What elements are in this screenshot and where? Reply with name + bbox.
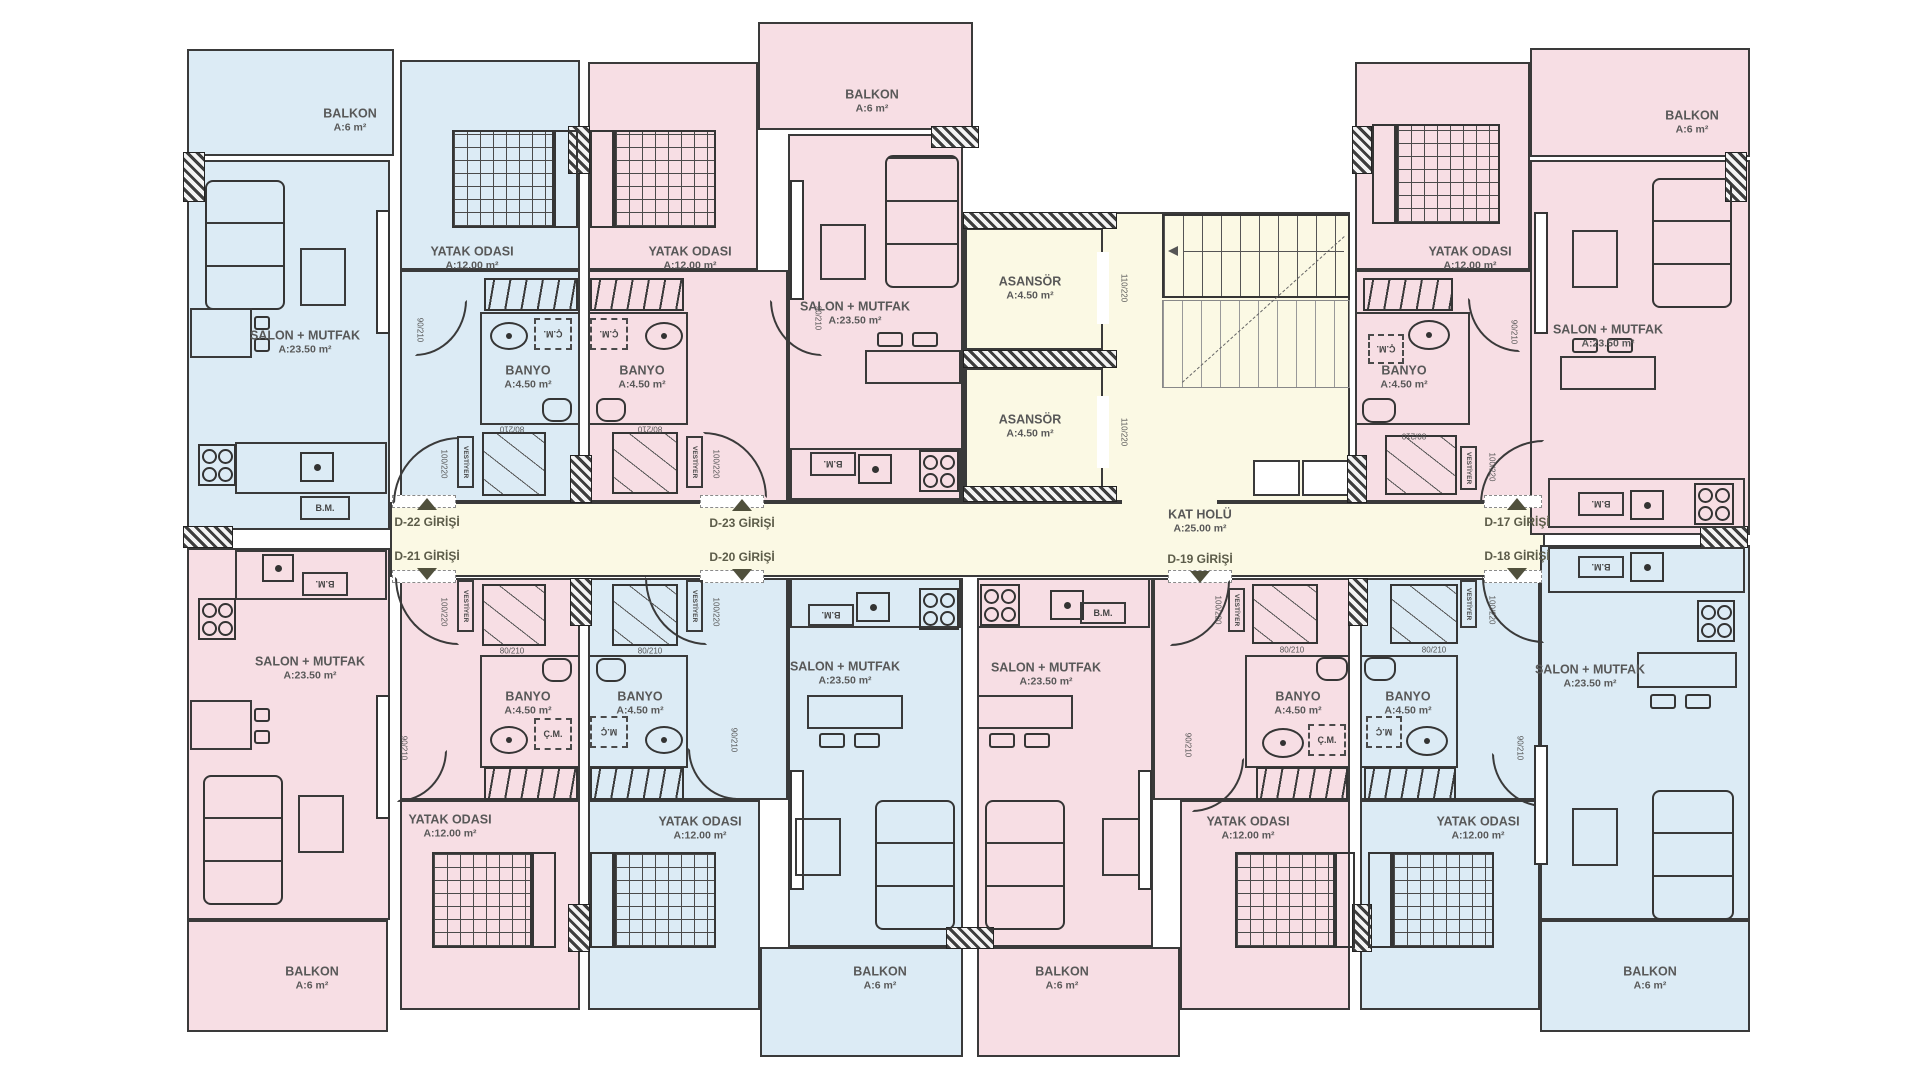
bed-headboard bbox=[590, 130, 614, 228]
washing-machine-label: Ç.M. bbox=[536, 320, 570, 348]
coffee-table bbox=[1572, 808, 1618, 866]
stool bbox=[854, 733, 880, 748]
tv-unit bbox=[376, 695, 390, 819]
entrance-arrow-d23 bbox=[732, 499, 752, 511]
dishwasher-label: B.M. bbox=[810, 606, 852, 624]
door-dimension: 110/220 bbox=[1120, 274, 1129, 302]
room-area: A:6 m² bbox=[1665, 124, 1718, 136]
room-name: SALON + MUTFAK bbox=[250, 328, 360, 342]
room-area: A:4.50 m² bbox=[504, 705, 551, 717]
room-name: BANYO bbox=[504, 689, 551, 703]
bed-headboard bbox=[1335, 852, 1355, 948]
room-area: A:23.50 m² bbox=[250, 344, 360, 356]
label-balcony-d18: BALKONA:6 m² bbox=[1623, 964, 1676, 991]
room-name: SALON + MUTFAK bbox=[1535, 662, 1645, 676]
stove bbox=[198, 444, 236, 486]
entrance-arrow-d18 bbox=[1507, 568, 1527, 580]
label-elevator-1: ASANSÖRA:4.50 m² bbox=[999, 274, 1062, 301]
dishwasher: B.M. bbox=[1578, 492, 1624, 516]
label-bedroom-d20: YATAK ODASIA:12.00 m² bbox=[658, 814, 741, 841]
door-dimension: 80/210 bbox=[1280, 646, 1304, 655]
stool bbox=[1650, 694, 1676, 709]
label-balcony-d21: BALKONA:6 m² bbox=[285, 964, 338, 991]
stove bbox=[919, 588, 959, 630]
dining-table bbox=[190, 308, 252, 358]
room-area: A:4.50 m² bbox=[1384, 705, 1431, 717]
wall-hatch bbox=[1352, 126, 1372, 174]
bed bbox=[1392, 852, 1494, 948]
label-salon-d22: SALON + MUTFAKA:23.50 m² bbox=[250, 328, 360, 355]
vestiyer-label: VESTİYER bbox=[459, 582, 472, 630]
dishwasher-label: B.M. bbox=[1580, 494, 1622, 514]
sofa bbox=[1652, 790, 1734, 920]
bed bbox=[452, 130, 554, 228]
entrance-arrow-d17 bbox=[1507, 498, 1527, 510]
vestiyer-label: VESTİYER bbox=[1230, 590, 1243, 630]
tv-unit bbox=[1534, 212, 1548, 334]
wall-hatch-elevator-bottom bbox=[963, 486, 1117, 502]
door-dimension: 100/220 bbox=[1214, 596, 1223, 625]
door-dimension: 80/210 bbox=[638, 647, 662, 656]
door-dimension: 80/210 bbox=[1402, 432, 1426, 441]
dishwasher: B.M. bbox=[808, 604, 854, 626]
bed bbox=[432, 852, 532, 948]
door-dimension: 100/220 bbox=[712, 450, 721, 479]
sofa bbox=[985, 800, 1065, 930]
corridor-kat-holu bbox=[390, 502, 1545, 577]
door-dimension: 110/220 bbox=[1120, 418, 1129, 446]
entrance-arrow-d19 bbox=[1190, 571, 1210, 583]
dishwasher: B.M. bbox=[302, 572, 348, 596]
label-bedroom-d23: YATAK ODASIA:12.00 m² bbox=[648, 244, 731, 271]
coffee-table bbox=[1572, 230, 1618, 288]
door-dimension: 90/210 bbox=[814, 306, 823, 330]
wall-hatch bbox=[570, 578, 592, 626]
stool bbox=[1024, 733, 1050, 748]
label-entrance-d21: D-21 GİRİŞİ bbox=[394, 549, 459, 563]
label-bathroom-d23: BANYOA:4.50 m² bbox=[618, 363, 665, 390]
room-name: SALON + MUTFAK bbox=[1553, 322, 1663, 336]
room-name: BALKON bbox=[1035, 964, 1088, 978]
bath-sink bbox=[645, 726, 683, 754]
toilet bbox=[596, 398, 626, 422]
wall-hatch bbox=[931, 126, 979, 148]
dishwasher: B.M. bbox=[810, 452, 856, 476]
label-bathroom-d18: BANYOA:4.50 m² bbox=[1384, 689, 1431, 716]
dining-table bbox=[1560, 356, 1656, 390]
room-area: A:12.00 m² bbox=[1436, 830, 1519, 842]
room-balcony-d17 bbox=[1530, 48, 1750, 157]
room-name: YATAK ODASI bbox=[1436, 814, 1519, 828]
wall-hatch bbox=[1348, 578, 1368, 626]
wall-hatch bbox=[183, 526, 233, 548]
room-name: BANYO bbox=[1380, 363, 1427, 377]
vestiyer-cabinet: VESTİYER bbox=[686, 436, 703, 488]
label-bathroom-d22: BANYOA:4.50 m² bbox=[504, 363, 551, 390]
stool bbox=[1685, 694, 1711, 709]
shower bbox=[612, 584, 678, 646]
label-salon-d20: SALON + MUTFAKA:23.50 m² bbox=[790, 659, 900, 686]
vestiyer-label: VESTİYER bbox=[459, 438, 472, 486]
label-bedroom-d22: YATAK ODASIA:12.00 m² bbox=[430, 244, 513, 271]
wardrobe bbox=[590, 278, 684, 311]
door-dimension: 90/210 bbox=[1516, 736, 1525, 760]
room-area: A:12.00 m² bbox=[1206, 830, 1289, 842]
sofa bbox=[205, 180, 285, 310]
room-area: A:6 m² bbox=[1623, 980, 1676, 992]
washing-machine-box: Ç.M. bbox=[590, 318, 628, 350]
kitchen-sink bbox=[300, 452, 334, 482]
label-balcony-d23: BALKONA:6 m² bbox=[845, 87, 898, 114]
door-dimension: 100/220 bbox=[712, 598, 721, 627]
room-balcony-d22 bbox=[187, 49, 394, 156]
room-area: A:12.00 m² bbox=[408, 828, 491, 840]
stool bbox=[912, 332, 938, 347]
dishwasher-label: B.M. bbox=[302, 498, 348, 518]
bed-headboard bbox=[1368, 852, 1392, 948]
room-area: A:12.00 m² bbox=[1428, 260, 1511, 272]
bed bbox=[614, 130, 716, 228]
kitchen-sink bbox=[858, 454, 892, 484]
room-name: BALKON bbox=[323, 106, 376, 120]
room-area: A:25.00 m² bbox=[1168, 523, 1232, 535]
dining-table bbox=[807, 695, 903, 729]
label-bathroom-d19: BANYOA:4.50 m² bbox=[1274, 689, 1321, 716]
door-dimension: 90/210 bbox=[416, 318, 425, 342]
stool bbox=[254, 730, 270, 744]
washing-machine-label: Ç.M. bbox=[1370, 336, 1402, 362]
label-entrance-d20: D-20 GİRİŞİ bbox=[709, 550, 774, 564]
room-name: BANYO bbox=[616, 689, 663, 703]
elevator-door-gap-1 bbox=[1097, 252, 1109, 324]
room-area: A:12.00 m² bbox=[658, 830, 741, 842]
room-name: YATAK ODASI bbox=[648, 244, 731, 258]
floor-plan-canvas: B.M. Ç.M. VESTİYER Ç.M. B.M. VESTİYER Ç.… bbox=[0, 0, 1920, 1080]
vestiyer-cabinet: VESTİYER bbox=[457, 436, 474, 488]
room-area: A:6 m² bbox=[853, 980, 906, 992]
door-dimension: 100/220 bbox=[440, 450, 449, 479]
door-dimension: 90/210 bbox=[1510, 320, 1519, 344]
toilet bbox=[1362, 398, 1396, 423]
toilet bbox=[1316, 657, 1348, 681]
shower bbox=[612, 432, 678, 494]
room-area: A:23.50 m² bbox=[1553, 338, 1663, 350]
toilet bbox=[596, 658, 626, 682]
room-area: A:4.50 m² bbox=[618, 379, 665, 391]
room-area: A:23.50 m² bbox=[255, 670, 365, 682]
toilet bbox=[542, 398, 572, 422]
stove bbox=[1697, 600, 1735, 642]
toilet bbox=[542, 658, 572, 682]
room-name: BALKON bbox=[845, 87, 898, 101]
bed bbox=[614, 852, 716, 948]
stove bbox=[1694, 483, 1734, 525]
bed bbox=[1235, 852, 1335, 948]
bed-headboard bbox=[590, 852, 614, 948]
tv-unit bbox=[376, 210, 390, 334]
room-name: BANYO bbox=[504, 363, 551, 377]
room-area: A:4.50 m² bbox=[616, 705, 663, 717]
sofa bbox=[875, 800, 955, 930]
sofa bbox=[203, 775, 283, 905]
stool bbox=[877, 332, 903, 347]
label-bedroom-d17: YATAK ODASIA:12.00 m² bbox=[1428, 244, 1511, 271]
wardrobe bbox=[590, 767, 684, 800]
stair-arrow-head bbox=[1168, 246, 1178, 256]
vestiyer-label: VESTİYER bbox=[1462, 448, 1475, 488]
door-dimension: 90/210 bbox=[1184, 733, 1193, 757]
door-dimension: 80/210 bbox=[638, 425, 662, 434]
label-balcony-d19: BALKONA:6 m² bbox=[1035, 964, 1088, 991]
wardrobe bbox=[1363, 278, 1453, 311]
dining-table bbox=[865, 350, 961, 384]
room-name: BALKON bbox=[853, 964, 906, 978]
washing-machine-box: Ç.M. bbox=[1368, 334, 1404, 364]
wall-hatch bbox=[568, 904, 590, 952]
wardrobe bbox=[1256, 767, 1348, 800]
door-dimension: 80/210 bbox=[500, 425, 524, 434]
dishwasher-label: B.M. bbox=[304, 574, 346, 594]
bed-headboard bbox=[1372, 124, 1396, 224]
room-area: A:23.50 m² bbox=[1535, 678, 1645, 690]
room-name: SALON + MUTFAK bbox=[991, 660, 1101, 674]
washing-machine-box: Ç.M. bbox=[1308, 724, 1346, 756]
coffee-table bbox=[820, 224, 866, 280]
dishwasher: B.M. bbox=[1080, 602, 1126, 624]
stool bbox=[819, 733, 845, 748]
room-area: A:4.50 m² bbox=[1380, 379, 1427, 391]
shower bbox=[482, 584, 546, 646]
room-area: A:6 m² bbox=[845, 103, 898, 115]
washing-machine-box: M.Ç bbox=[590, 716, 628, 748]
entrance-arrow-d21 bbox=[417, 568, 437, 580]
room-name: YATAK ODASI bbox=[430, 244, 513, 258]
entrance-arrow-d20 bbox=[732, 569, 752, 581]
room-area: A:6 m² bbox=[1035, 980, 1088, 992]
wall-hatch-elevator-top bbox=[963, 212, 1117, 229]
tv-unit bbox=[790, 180, 804, 300]
stair-arrow-line bbox=[1184, 251, 1344, 252]
room-name: BANYO bbox=[1384, 689, 1431, 703]
room-name: SALON + MUTFAK bbox=[790, 659, 900, 673]
room-area: A:23.50 m² bbox=[991, 676, 1101, 688]
wall-hatch bbox=[946, 927, 994, 949]
bath-sink bbox=[490, 726, 528, 754]
entrance-arrow-d22 bbox=[417, 498, 437, 510]
room-name: YATAK ODASI bbox=[1428, 244, 1511, 258]
label-balcony-d20: BALKONA:6 m² bbox=[853, 964, 906, 991]
bath-sink bbox=[1262, 728, 1304, 758]
sofa bbox=[1652, 178, 1732, 308]
door-dimension: 100/220 bbox=[440, 598, 449, 627]
vestiyer-label: VESTİYER bbox=[688, 438, 701, 486]
room-name: SALON + MUTFAK bbox=[255, 654, 365, 668]
bed-headboard bbox=[532, 852, 556, 948]
wall-hatch-elevator-mid bbox=[963, 350, 1117, 368]
room-area: A:12.00 m² bbox=[430, 260, 513, 272]
shower bbox=[482, 432, 546, 496]
dining-table bbox=[977, 695, 1073, 729]
washing-machine-label: Ç.M. bbox=[1310, 726, 1344, 754]
room-name: YATAK ODASI bbox=[658, 814, 741, 828]
room-area: A:4.50 m² bbox=[504, 379, 551, 391]
bed bbox=[1396, 124, 1500, 224]
washing-machine-box: M.Ç bbox=[1366, 716, 1402, 748]
wall-hatch bbox=[1347, 455, 1367, 503]
vestiyer-label: VESTİYER bbox=[1462, 582, 1475, 626]
door-dimension: 80/210 bbox=[1422, 646, 1446, 655]
room-name: BANYO bbox=[1274, 689, 1321, 703]
wall-hatch bbox=[183, 152, 205, 202]
bath-sink bbox=[490, 322, 528, 350]
stool bbox=[989, 733, 1015, 748]
wall-hatch bbox=[570, 455, 592, 503]
label-bathroom-d20: BANYOA:4.50 m² bbox=[616, 689, 663, 716]
dishwasher-label: B.M. bbox=[1082, 604, 1124, 622]
vestiyer-cabinet: VESTİYER bbox=[1460, 580, 1477, 628]
bed-headboard bbox=[554, 130, 578, 228]
door-dimension: 100/220 bbox=[1488, 453, 1497, 482]
dishwasher: B.M. bbox=[1578, 556, 1624, 578]
label-entrance-d17: D-17 GİRİŞİ bbox=[1484, 515, 1549, 529]
bath-sink bbox=[1406, 726, 1448, 756]
elevator-door-gap-2 bbox=[1097, 396, 1109, 468]
vestiyer-label: VESTİYER bbox=[688, 582, 701, 630]
tv-unit bbox=[1138, 770, 1152, 890]
dishwasher-label: B.M. bbox=[812, 454, 854, 474]
room-area: A:4.50 m² bbox=[1274, 705, 1321, 717]
vestiyer-cabinet: VESTİYER bbox=[1460, 446, 1477, 490]
label-elevator-2: ASANSÖRA:4.50 m² bbox=[999, 412, 1062, 439]
corridor-opening bbox=[1122, 498, 1217, 506]
label-salon-d17: SALON + MUTFAKA:23.50 m² bbox=[1553, 322, 1663, 349]
label-entrance-d18: D-18 GİRİŞİ bbox=[1484, 549, 1549, 563]
room-name: BANYO bbox=[618, 363, 665, 377]
room-name: KAT HOLÜ bbox=[1168, 507, 1232, 521]
vestiyer-cabinet: VESTİYER bbox=[686, 580, 703, 632]
vestiyer-cabinet: VESTİYER bbox=[1228, 588, 1245, 632]
room-area: A:6 m² bbox=[323, 122, 376, 134]
stair-landing-1 bbox=[1253, 460, 1300, 496]
stair-landing-2 bbox=[1302, 460, 1350, 496]
wardrobe bbox=[1364, 767, 1456, 800]
room-name: ASANSÖR bbox=[999, 274, 1062, 288]
dining-table bbox=[190, 700, 252, 750]
bath-sink bbox=[645, 322, 683, 350]
label-bedroom-d18: YATAK ODASIA:12.00 m² bbox=[1436, 814, 1519, 841]
kitchen-sink bbox=[1630, 552, 1664, 582]
bath-sink bbox=[1408, 320, 1450, 350]
label-bedroom-d21: YATAK ODASIA:12.00 m² bbox=[408, 812, 491, 839]
room-area: A:23.50 m² bbox=[790, 675, 900, 687]
shower bbox=[1390, 584, 1458, 644]
vestiyer-cabinet: VESTİYER bbox=[457, 580, 474, 632]
room-area: A:12.00 m² bbox=[648, 260, 731, 272]
washing-machine-label: Ç.M. bbox=[536, 720, 570, 748]
room-name: YATAK ODASI bbox=[408, 812, 491, 826]
label-balcony-d22: BALKONA:6 m² bbox=[323, 106, 376, 133]
label-bathroom-d21: BANYOA:4.50 m² bbox=[504, 689, 551, 716]
stool bbox=[254, 708, 270, 722]
wardrobe bbox=[484, 278, 578, 311]
door-dimension: 90/210 bbox=[400, 736, 409, 760]
room-name: BALKON bbox=[1623, 964, 1676, 978]
room-name: BALKON bbox=[285, 964, 338, 978]
stove bbox=[980, 584, 1020, 626]
stove bbox=[919, 450, 959, 492]
door-dimension: 100/220 bbox=[1488, 596, 1497, 625]
label-entrance-d23: D-23 GİRİŞİ bbox=[709, 516, 774, 530]
sofa bbox=[885, 155, 959, 288]
washing-machine-box: Ç.M. bbox=[534, 718, 572, 750]
door-dimension: 80/210 bbox=[500, 647, 524, 656]
coffee-table bbox=[298, 795, 344, 853]
label-bathroom-d17: BANYOA:4.50 m² bbox=[1380, 363, 1427, 390]
washing-machine-label: M.Ç bbox=[1368, 718, 1400, 746]
label-salon-d18: SALON + MUTFAKA:23.50 m² bbox=[1535, 662, 1645, 689]
dishwasher: B.M. bbox=[300, 496, 350, 520]
tv-unit bbox=[1534, 745, 1548, 865]
room-name: ASANSÖR bbox=[999, 412, 1062, 426]
coffee-table bbox=[795, 818, 841, 876]
label-entrance-d19: D-19 GİRİŞİ bbox=[1167, 552, 1232, 566]
wall-hatch bbox=[1700, 526, 1748, 548]
kitchen-sink bbox=[262, 554, 294, 582]
kitchen-sink bbox=[1630, 490, 1664, 520]
label-salon-d21: SALON + MUTFAKA:23.50 m² bbox=[255, 654, 365, 681]
shower bbox=[1385, 435, 1457, 495]
kitchen-sink bbox=[856, 592, 890, 622]
room-area: A:4.50 m² bbox=[999, 290, 1062, 302]
wardrobe bbox=[484, 767, 578, 800]
label-kat-holu: KAT HOLÜA:25.00 m² bbox=[1168, 507, 1232, 534]
room-area: A:6 m² bbox=[285, 980, 338, 992]
kitchen-sink bbox=[1050, 590, 1084, 620]
coffee-table bbox=[300, 248, 346, 306]
toilet bbox=[1364, 657, 1396, 681]
label-salon-d19: SALON + MUTFAKA:23.50 m² bbox=[991, 660, 1101, 687]
room-name: YATAK ODASI bbox=[1206, 814, 1289, 828]
label-balcony-d17: BALKONA:6 m² bbox=[1665, 108, 1718, 135]
dining-table bbox=[1637, 652, 1737, 688]
stove bbox=[198, 598, 236, 640]
door-dimension: 90/210 bbox=[730, 728, 739, 752]
dishwasher-label: B.M. bbox=[1580, 558, 1622, 576]
room-name: BALKON bbox=[1665, 108, 1718, 122]
label-entrance-d22: D-22 GİRİŞİ bbox=[394, 515, 459, 529]
label-bedroom-d19: YATAK ODASIA:12.00 m² bbox=[1206, 814, 1289, 841]
washing-machine-box: Ç.M. bbox=[534, 318, 572, 350]
room-area: A:4.50 m² bbox=[999, 428, 1062, 440]
washing-machine-label: M.Ç bbox=[592, 718, 626, 746]
washing-machine-label: Ç.M. bbox=[592, 320, 626, 348]
shower bbox=[1252, 584, 1318, 644]
